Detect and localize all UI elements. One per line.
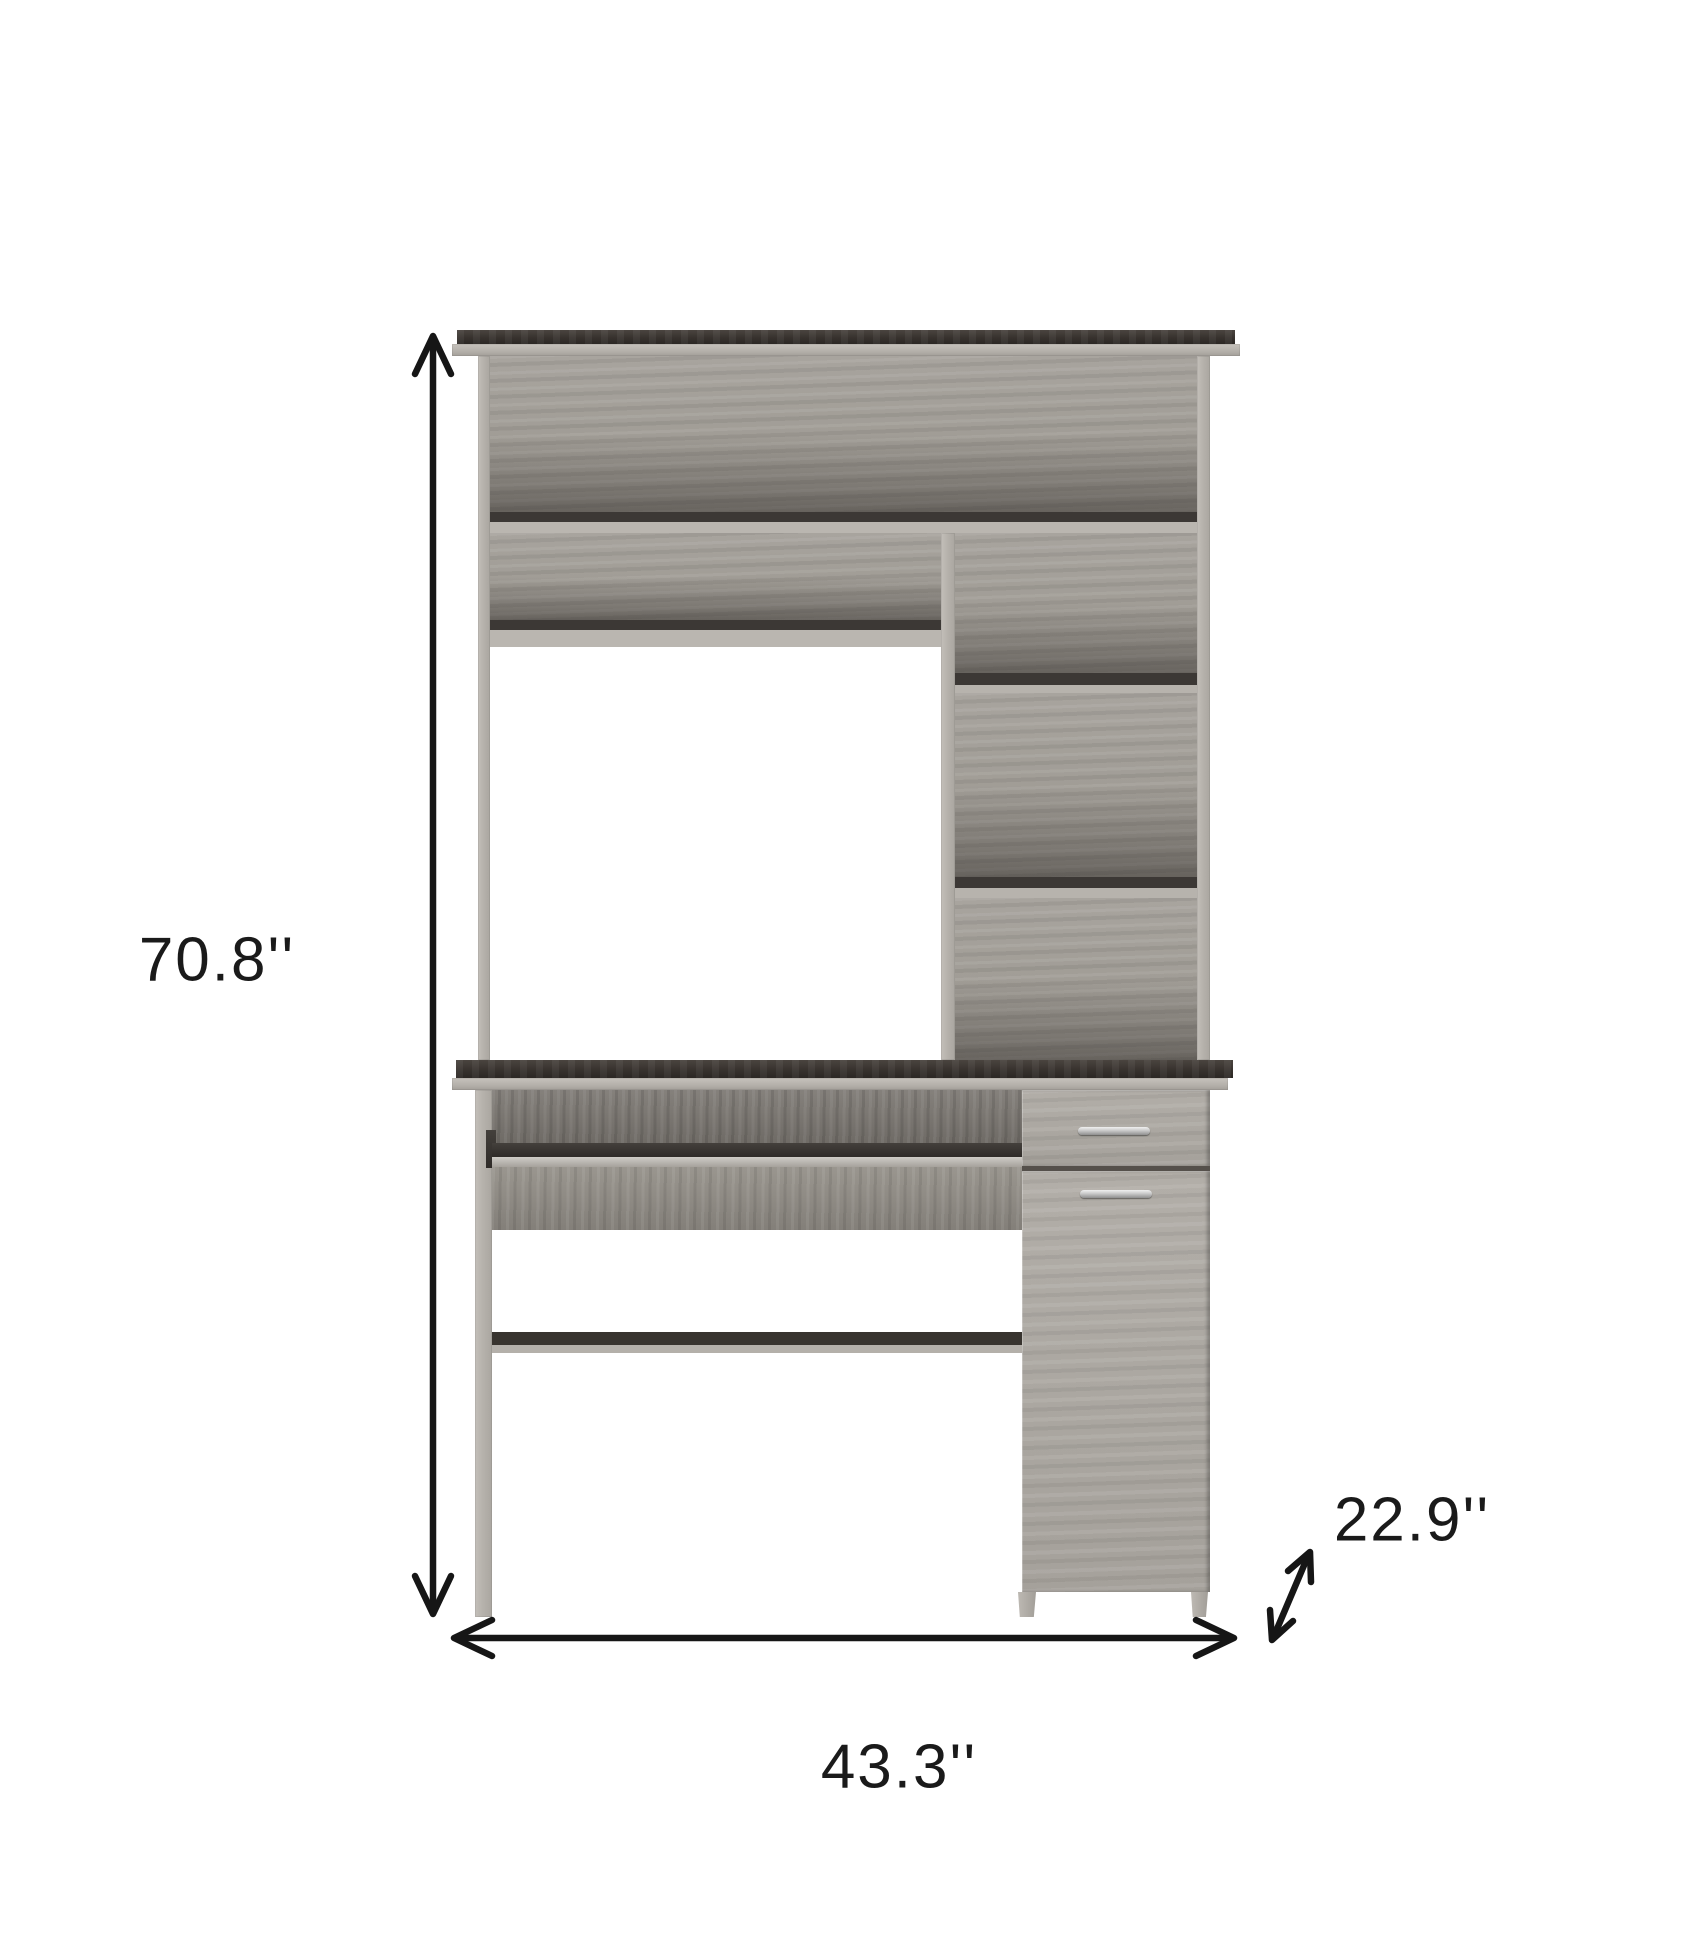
product-dimension-diagram: 70.8'' 43.3'' 22.9'' [0,0,1690,1950]
depth-dimension-label: 22.9'' [1334,1485,1490,1556]
depth-arrow [1270,1552,1311,1640]
height-dimension-label: 70.8'' [139,925,295,996]
width-arrow [454,1620,1234,1656]
width-dimension-label: 43.3'' [821,1732,977,1803]
height-arrow [415,336,451,1614]
